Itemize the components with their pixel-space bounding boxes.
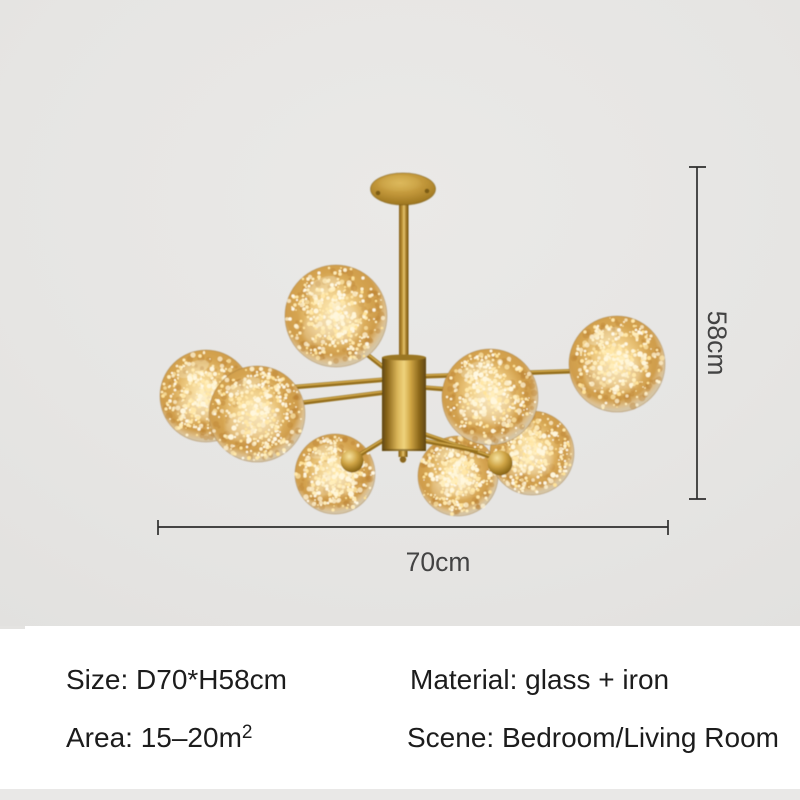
svg-text:70cm: 70cm [406,547,471,577]
svg-text:Material: glass + iron: Material: glass + iron [410,664,669,695]
svg-text:Size: D70*H58cm: Size: D70*H58cm [66,664,287,695]
svg-text:Area: 15–20m2: Area: 15–20m2 [66,722,252,753]
svg-text:58cm: 58cm [702,311,732,376]
svg-text:Scene: Bedroom/Living Room: Scene: Bedroom/Living Room [407,722,779,753]
